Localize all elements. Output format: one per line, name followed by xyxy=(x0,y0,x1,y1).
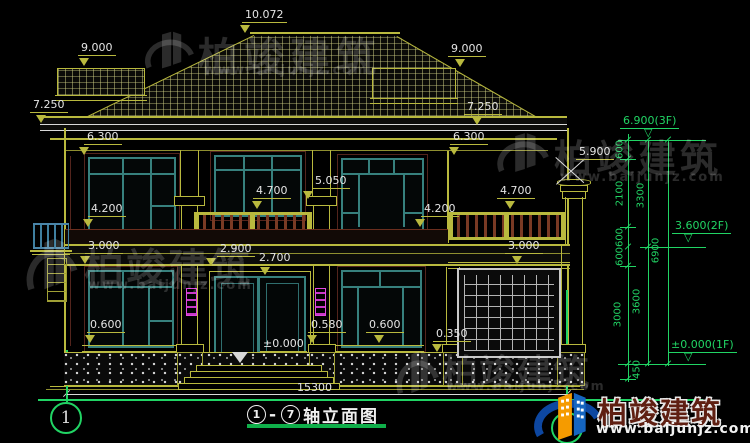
dim-tri xyxy=(260,267,270,275)
level-flag-tri: ▽ xyxy=(684,351,692,362)
watermark-url-text: www.baijunjz.com xyxy=(560,170,725,185)
dim-column-cap: 5.050 xyxy=(312,174,350,189)
brand-logo-icon xyxy=(22,226,78,304)
watermark-left: 柏竣建筑 www.baijunjz.com xyxy=(22,226,78,304)
level-flag-1f: ±0.000(1F) xyxy=(668,338,737,353)
dim-eave-left: 7.250 xyxy=(30,98,68,113)
left-side-roof-fascia xyxy=(55,95,147,101)
dim-tri xyxy=(449,147,459,155)
dim-ridge: 10.072 xyxy=(242,8,287,23)
pilaster-center-shaft-upper xyxy=(312,150,331,196)
dim-terrace-rail: 4.700 xyxy=(497,184,535,199)
seg-600-c: 600 xyxy=(615,235,626,279)
dim-tri xyxy=(79,58,89,66)
title-axis-to: 7 xyxy=(281,405,300,424)
corner-pillar-pier xyxy=(561,244,583,344)
brand-logo-url: www.baijunjz.com xyxy=(596,421,750,437)
dim-soffit-right: 6.300 xyxy=(450,130,488,145)
left-side-roof xyxy=(57,68,145,96)
elevation-drawing-canvas: 10.072 9.000 9.000 7.250 7.250 6.300 6.3… xyxy=(0,0,750,443)
wall-lamp-right xyxy=(315,288,326,316)
dim-tri-floor xyxy=(232,352,248,363)
dim-tri xyxy=(252,201,262,209)
brand-logo-icon xyxy=(140,25,195,77)
dim-tri xyxy=(374,335,384,343)
dim-tri xyxy=(512,256,522,264)
watermark-url-text: www.baijunjz.com xyxy=(88,278,253,293)
dim-garage-base: 0.350 xyxy=(433,327,471,342)
dim-pedestal: 0.580 xyxy=(308,318,346,333)
dim-total-width: 15300 xyxy=(297,381,332,394)
corner-pillar-shaft xyxy=(565,197,583,244)
right-side-roof-fascia xyxy=(370,98,458,104)
dim-tri xyxy=(472,117,482,125)
seg-3000: 3000 xyxy=(613,293,624,337)
window-2f-left xyxy=(88,157,176,235)
dim-door-head: 2.700 xyxy=(256,251,294,266)
dim-soffit-left: 6.300 xyxy=(84,130,122,145)
title-dash: - xyxy=(269,405,278,425)
dim-tri xyxy=(455,59,465,67)
dim-tri xyxy=(83,219,93,227)
brand-logo-color-icon xyxy=(528,384,604,443)
dim-sill2f-right: 4.200 xyxy=(421,202,459,217)
seg-450: 450 xyxy=(632,348,643,392)
pilaster-left-shaft-upper xyxy=(180,150,199,196)
watermark-top: 柏竣建筑 www.baijunjz.com xyxy=(140,25,195,77)
dim-sill1f-left: 0.600 xyxy=(87,318,125,333)
seg-6900: 6900 xyxy=(651,229,662,273)
dim-eave-right: 7.250 xyxy=(464,100,502,115)
dim-tri xyxy=(85,335,95,343)
dim-tri xyxy=(307,335,317,343)
dim-tri xyxy=(36,115,46,123)
dim-floor1-door: ±0.000 xyxy=(260,337,307,352)
wall-top-line xyxy=(65,150,548,151)
level-flag-2f: 3.600(2F) xyxy=(672,219,731,234)
terrace-post xyxy=(504,212,509,240)
axis-bubble-1: 1 xyxy=(50,402,82,434)
dim-sideroof-left: 9.000 xyxy=(78,41,116,56)
watermark-bottom: 柏竣建筑 www.baijunjz.com xyxy=(392,342,440,404)
title-underline xyxy=(247,424,386,428)
right-side-roof xyxy=(372,68,456,99)
dim-balcony-rail: 4.700 xyxy=(253,184,291,199)
brand-logo-icon xyxy=(392,342,440,404)
dim-tri xyxy=(505,201,515,209)
dim-tri xyxy=(415,219,425,227)
seg-3600: 3600 xyxy=(632,280,643,324)
dim-sill1f-mid: 0.600 xyxy=(366,318,404,333)
window-2f-center-right xyxy=(341,158,424,233)
watermark-url-text: www.baijunjz.com xyxy=(204,63,369,78)
dim-slab-right: 3.000 xyxy=(505,239,543,254)
title-axis-from: 1 xyxy=(247,405,266,424)
watermark-right: 柏竣建筑 www.baijunjz.com xyxy=(492,126,550,181)
dim-sill2f-left: 4.200 xyxy=(88,202,126,217)
dim-tri xyxy=(303,191,313,199)
dim-sideroof-right: 9.000 xyxy=(448,42,486,57)
level-flag-tri: ▽ xyxy=(684,232,692,243)
window-1f-left-sill xyxy=(82,345,176,352)
brand-logo-icon xyxy=(492,126,550,181)
dim-tri xyxy=(79,147,89,155)
eave-fascia-line xyxy=(40,124,567,125)
